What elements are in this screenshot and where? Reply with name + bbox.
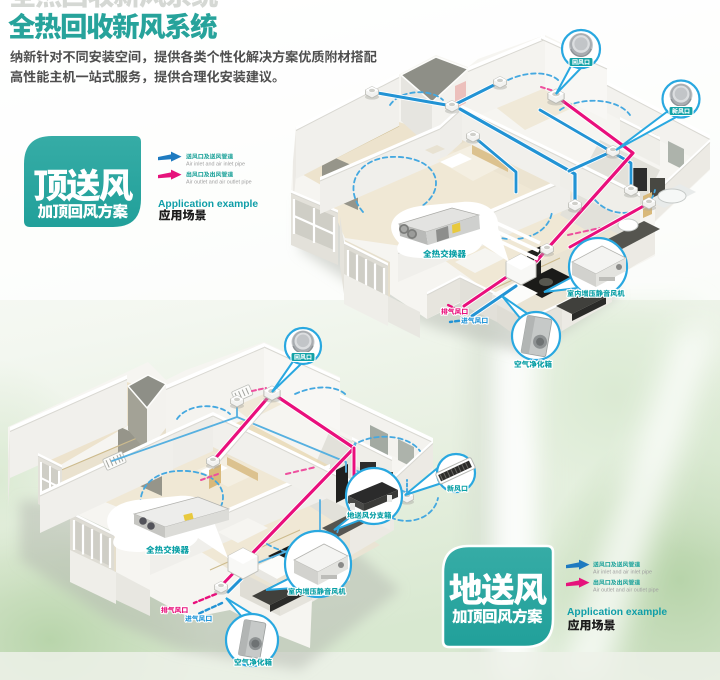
svg-text:Air inlet and air inlet pipe: Air inlet and air inlet pipe xyxy=(186,162,245,168)
svg-text:Application example: Application example xyxy=(158,199,258,210)
svg-text:Air outlet and air outlet pipe: Air outlet and air outlet pipe xyxy=(593,588,659,594)
svg-text:Air inlet and air inlet pipe: Air inlet and air inlet pipe xyxy=(593,570,652,576)
svg-text:Application example: Application example xyxy=(567,607,667,618)
svg-text:Air outlet and air outlet pipe: Air outlet and air outlet pipe xyxy=(186,180,252,186)
